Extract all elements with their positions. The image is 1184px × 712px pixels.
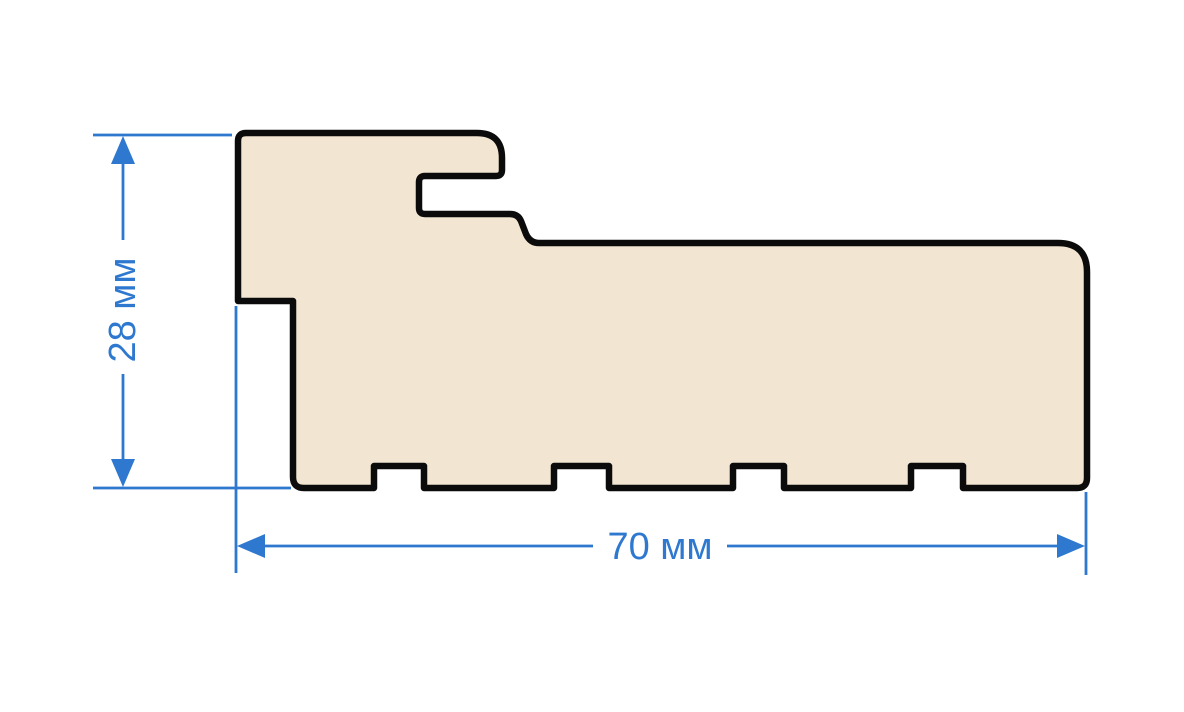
arrow-up-icon: [111, 136, 135, 164]
profile-shape: [238, 133, 1087, 488]
profile-diagram-svg: 28 мм 70 мм: [0, 0, 1184, 712]
width-dimension-label: 70 мм: [607, 526, 712, 568]
height-dimension-label: 28 мм: [102, 257, 144, 362]
arrow-left-icon: [237, 534, 265, 558]
arrow-right-icon: [1057, 534, 1085, 558]
arrow-down-icon: [111, 459, 135, 487]
diagram-canvas: 28 мм 70 мм: [0, 0, 1184, 712]
